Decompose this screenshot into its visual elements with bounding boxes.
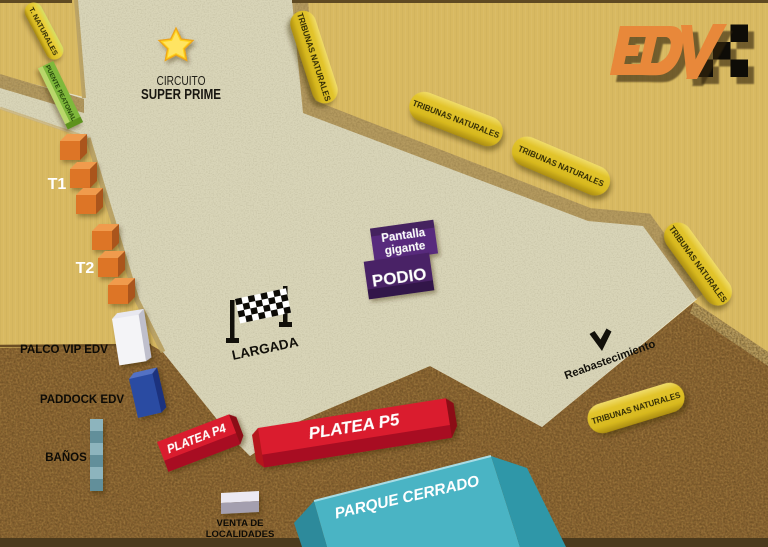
svg-text:PALCO VIP EDV: PALCO VIP EDV xyxy=(20,344,108,356)
svg-text:T1: T1 xyxy=(48,176,67,193)
svg-text:LOCALIDADES: LOCALIDADES xyxy=(206,529,275,540)
svg-text:SUPER PRIME: SUPER PRIME xyxy=(141,86,221,103)
svg-text:T2: T2 xyxy=(76,260,95,277)
svg-text:VENTA DE: VENTA DE xyxy=(217,518,264,529)
svg-text:PADDOCK EDV: PADDOCK EDV xyxy=(40,394,124,406)
svg-text:BAÑOS: BAÑOS xyxy=(45,451,87,464)
